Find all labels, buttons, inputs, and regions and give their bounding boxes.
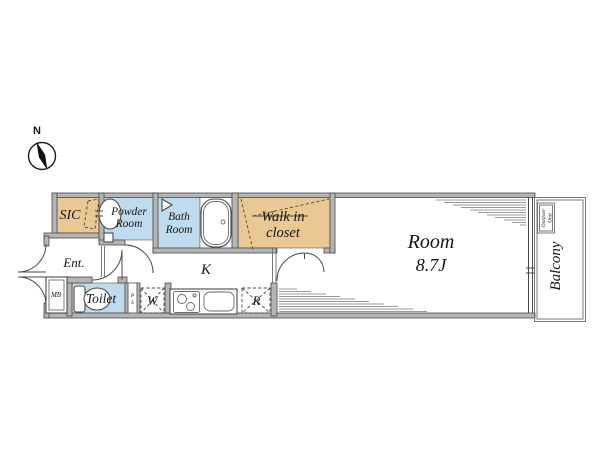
outdoor-unit-line2: Unit (548, 213, 554, 223)
wall-bottom (44, 313, 535, 318)
toilet-tank-icon (74, 286, 85, 312)
room-label-line1: Room (407, 231, 455, 253)
entrance-door-leaves (18, 272, 46, 277)
closet-label-line2: closet (266, 225, 301, 241)
wall-toilet-top-left (67, 277, 92, 283)
fridge-label: R (252, 294, 261, 308)
closet-door-arc-right (305, 253, 324, 272)
wall-kitchen-top (153, 248, 277, 253)
kitchen-label: K (200, 262, 212, 278)
entrance-label: Ent. (62, 255, 84, 270)
window-mullion-ticks (526, 268, 535, 273)
wall-top (52, 193, 535, 198)
bath-label-line2: Room (165, 224, 193, 236)
closet-label-line1: Walk in (261, 209, 304, 225)
entrance-door-arc-upper (18, 244, 46, 272)
compass-north-label: N (33, 125, 41, 137)
powder-door-arc (125, 245, 153, 273)
powder-label-line2: Room (115, 218, 143, 230)
compass-needle-icon (37, 143, 47, 169)
bath-label-line1: Bath (168, 211, 190, 223)
washer-label: W (147, 294, 159, 308)
toilet-door-arc (92, 250, 122, 280)
sic-label: SIC (60, 208, 82, 223)
wall-powder-bath (153, 193, 158, 253)
pipe-space-label-s: S (131, 300, 134, 306)
wall-bath-closet (232, 193, 238, 248)
balcony-label: Balcony (548, 241, 564, 290)
entrance-step-lines (102, 246, 105, 277)
toilet-label: Toilet (86, 291, 118, 306)
floor-plan-page: N (0, 0, 600, 450)
kitchen-counter (170, 289, 237, 314)
wall-closet-room (330, 193, 335, 253)
wall-left-upper (52, 193, 57, 238)
room-label-line2: 8.7J (416, 255, 448, 275)
wall-kitchen-room-lower (271, 283, 277, 316)
window-glass-lines (529, 197, 533, 313)
room-corner-hatch-top (436, 200, 526, 225)
meter-box-label: MB (50, 291, 62, 299)
outdoor-unit-label: Outdoor Unit (541, 208, 554, 228)
pipe-space-label-p: P (130, 293, 135, 299)
powder-label-line1: Powder (110, 206, 147, 218)
balcony-window (526, 197, 535, 313)
closet-door-arc-left (277, 253, 305, 281)
entrance-door-arc-lower (18, 277, 46, 305)
wall-left-entry-stub-top (44, 236, 49, 246)
balcony: Outdoor Unit Balcony (535, 198, 586, 322)
floor-plan-drawing: N (0, 0, 600, 450)
wall-sic-bottom (44, 233, 99, 238)
powder-corner-post (104, 233, 113, 242)
outdoor-unit-line1: Outdoor (541, 208, 547, 228)
room-corner-hatch-bottom (279, 289, 427, 312)
compass: N (29, 125, 56, 170)
